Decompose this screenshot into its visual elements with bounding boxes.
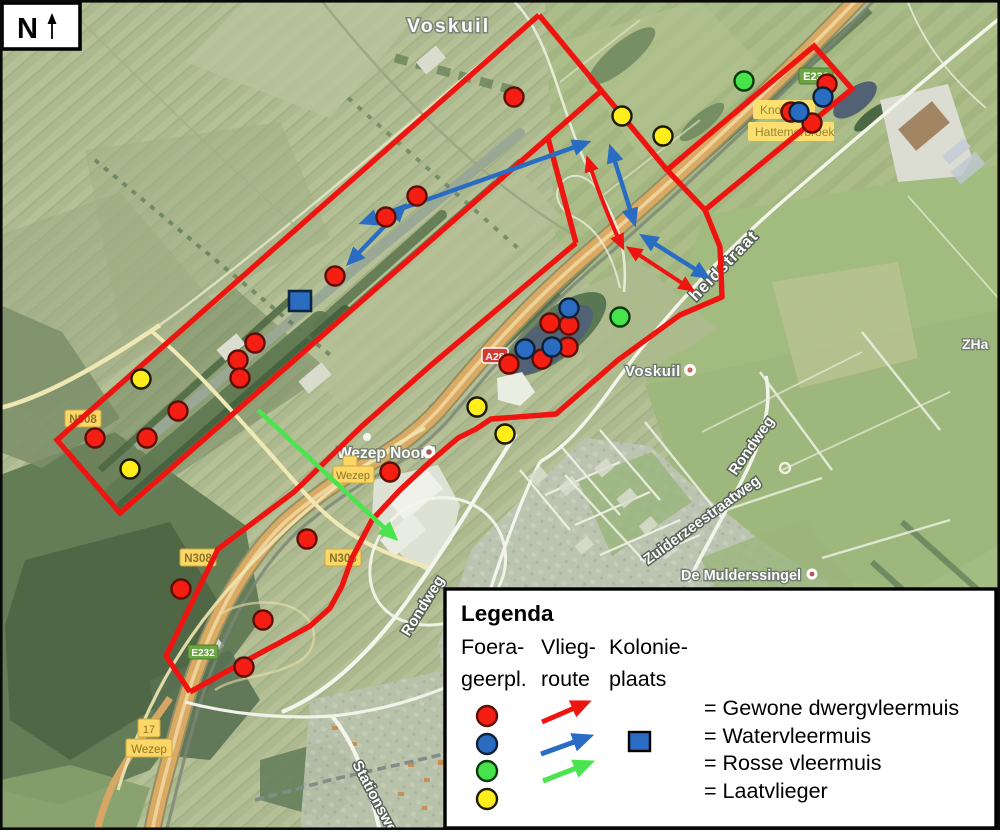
- svg-text:= Rosse vleermuis: = Rosse vleermuis: [704, 751, 881, 775]
- svg-text:Foera-: Foera-: [461, 635, 524, 659]
- svg-text:route: route: [541, 667, 590, 691]
- svg-text:Wezep: Wezep: [336, 470, 370, 482]
- svg-text:E232: E232: [191, 648, 215, 659]
- svg-text:= Watervleermuis: = Watervleermuis: [704, 724, 871, 748]
- svg-text:Voskuil: Voskuil: [407, 15, 490, 37]
- svg-text:ZHa: ZHa: [962, 336, 989, 352]
- svg-text:Kolonie-: Kolonie-: [609, 635, 688, 659]
- svg-text:N: N: [17, 13, 38, 45]
- svg-text:geerpl.: geerpl.: [461, 667, 527, 691]
- svg-text:Vlieg-: Vlieg-: [541, 635, 596, 659]
- svg-text:plaats: plaats: [609, 667, 666, 691]
- svg-text:Legenda: Legenda: [461, 601, 554, 626]
- svg-text:De Mulderssingel: De Mulderssingel: [681, 568, 801, 584]
- svg-text:= Laatvlieger: = Laatvlieger: [704, 779, 828, 803]
- svg-text:= Gewone dwergvleermuis: = Gewone dwergvleermuis: [704, 696, 959, 720]
- svg-text:Wezep: Wezep: [131, 744, 167, 756]
- svg-text:17: 17: [143, 724, 155, 736]
- svg-text:Voskuil: Voskuil: [625, 363, 681, 380]
